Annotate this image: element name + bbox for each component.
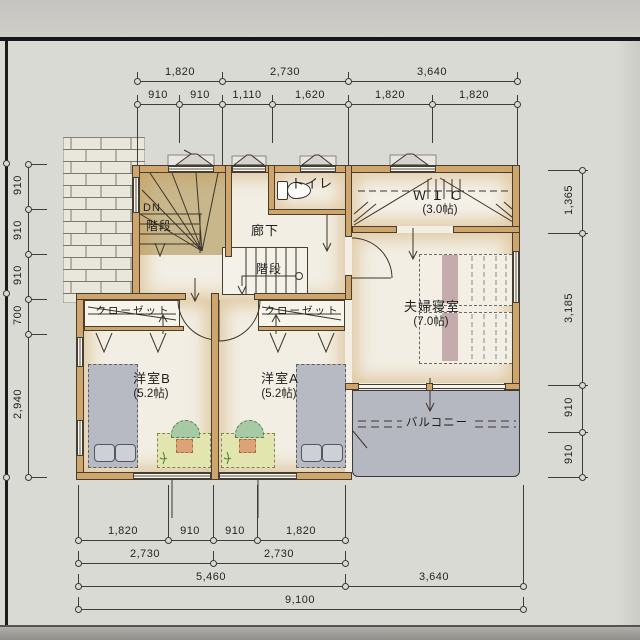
- corridor-label: 廊下: [251, 224, 279, 238]
- dim-top2-0: 910: [148, 89, 168, 101]
- dimension-dot: [3, 290, 10, 297]
- plant-icons: [160, 452, 231, 464]
- wic-size: (3.0帖): [422, 204, 457, 217]
- window: [390, 166, 436, 172]
- dimension-tick: [348, 105, 349, 165]
- window: [77, 420, 83, 456]
- dimension-line: [137, 104, 517, 105]
- dimension-dot: [25, 296, 32, 303]
- wic-label: ＷＩＣ: [413, 189, 467, 203]
- dim-bot1-2: 910: [225, 525, 245, 537]
- wall-segment: [268, 209, 352, 215]
- dimension-dot: [134, 78, 141, 85]
- dimension-dot: [3, 160, 10, 167]
- dimension-line: [78, 609, 523, 610]
- wall-segment: [225, 165, 232, 257]
- stairs-upper-label: 階段: [146, 220, 172, 233]
- wall-segment: [345, 165, 352, 237]
- dimension-dot: [210, 560, 217, 567]
- wall-segment: [352, 226, 397, 233]
- dimension-dot: [345, 101, 352, 108]
- dim-right-1: 3,185: [563, 286, 575, 330]
- dimension-dot: [134, 101, 141, 108]
- dim-bot1-3: 1,820: [286, 525, 316, 537]
- window: [133, 473, 211, 479]
- toilet-label: トイレ: [291, 177, 333, 191]
- dim-bot2-1: 2,730: [264, 548, 294, 560]
- dim-left-3: 700: [12, 293, 24, 337]
- page-right-shade: [616, 41, 640, 625]
- dimension-dot: [579, 230, 586, 237]
- dim-bot4-0: 9,100: [285, 594, 315, 606]
- dimension-tick: [272, 105, 273, 143]
- wall-segment: [76, 293, 186, 300]
- window: [219, 473, 297, 479]
- window: [168, 166, 214, 172]
- wall-segment: [453, 226, 520, 233]
- window: [232, 166, 266, 172]
- dim-right-3: 910: [563, 432, 575, 476]
- dimension-tick: [137, 105, 138, 165]
- master-bedroom-label: 夫婦寝室: [404, 300, 460, 314]
- wall-segment: [504, 383, 520, 390]
- dim-bot1-0: 1,820: [108, 525, 138, 537]
- dimension-dot: [25, 331, 32, 338]
- dim-top1-0: 1,820: [165, 66, 195, 78]
- dimension-tick: [179, 105, 180, 143]
- dimension-dot: [514, 78, 521, 85]
- dim-bot1-1: 910: [180, 525, 200, 537]
- dim-left-1: 910: [12, 208, 24, 252]
- dimension-dot: [520, 606, 527, 613]
- room-a-label: 洋室A: [261, 372, 299, 386]
- dimension-dot: [345, 78, 352, 85]
- dimension-dot: [75, 537, 82, 544]
- wall-post: [426, 383, 433, 391]
- dimension-dot: [25, 161, 32, 168]
- window: [300, 166, 336, 172]
- closet-a-label: クローゼット: [265, 306, 340, 318]
- dimension-line: [137, 81, 517, 82]
- wall-segment: [345, 275, 352, 300]
- wall-segment: [84, 326, 184, 331]
- dimension-dot: [75, 606, 82, 613]
- dim-bot3-0: 5,460: [196, 571, 226, 583]
- wall-segment: [345, 383, 359, 390]
- dimension-dot: [579, 474, 586, 481]
- dimension-dot: [165, 537, 172, 544]
- wall-segment: [254, 293, 352, 300]
- dimension-dot: [25, 474, 32, 481]
- dimension-tick: [523, 485, 524, 583]
- dim-left-0: 910: [12, 163, 24, 207]
- window: [513, 251, 519, 303]
- page-top-band: [0, 0, 640, 37]
- dimension-dot: [75, 583, 82, 590]
- dimension-dot: [342, 537, 349, 544]
- master-bed-fold-lines: [472, 256, 506, 359]
- page-left-edge: [5, 41, 8, 628]
- stairs-upper-fan: [140, 173, 218, 256]
- dim-right-2: 910: [563, 385, 575, 429]
- page-bottom-band: [0, 627, 640, 640]
- dimension-line: [78, 586, 523, 587]
- dim-bot2-0: 2,730: [130, 548, 160, 560]
- dimension-dot: [520, 583, 527, 590]
- dim-top2-1: 910: [190, 89, 210, 101]
- dim-top2-3: 1,620: [295, 89, 325, 101]
- dimension-dot: [579, 167, 586, 174]
- dimension-dot: [429, 101, 436, 108]
- dim-right-0: 1,365: [563, 178, 575, 222]
- dimension-dot: [342, 560, 349, 567]
- dimension-tick: [222, 105, 223, 165]
- closet-b-label: クローゼット: [96, 306, 171, 318]
- dimension-dot: [219, 78, 226, 85]
- room-b-label: 洋室B: [133, 372, 171, 386]
- room-b-size: (5.2帖): [133, 388, 168, 401]
- wall-segment: [258, 326, 345, 331]
- dimension-dot: [210, 537, 217, 544]
- dim-left-2: 910: [12, 253, 24, 297]
- dimension-dot: [254, 537, 261, 544]
- room-a-size: (5.2帖): [261, 388, 296, 401]
- dimension-dot: [75, 560, 82, 567]
- dimension-dot: [3, 474, 10, 481]
- dimension-tick: [517, 105, 518, 165]
- dim-top2-5: 1,820: [459, 89, 489, 101]
- dim-top1-1: 2,730: [270, 66, 300, 78]
- dimension-dot: [25, 206, 32, 213]
- dimension-dot: [579, 429, 586, 436]
- wall-segment: [268, 165, 275, 215]
- stairs-center-label: 階段: [256, 263, 282, 276]
- dimension-dot: [176, 101, 183, 108]
- page-top-rule: [0, 37, 640, 41]
- dim-top2-2: 1,110: [232, 89, 261, 101]
- window: [133, 177, 139, 213]
- dimension-dot: [579, 382, 586, 389]
- dim-top1-2: 3,640: [417, 66, 447, 78]
- floor-plan-photo: { "rooms": { "toilet": {"label": "トイレ"},…: [0, 0, 640, 640]
- wall-segment: [211, 293, 219, 480]
- stairs-dn-label: DN: [143, 202, 161, 214]
- dimension-dot: [342, 583, 349, 590]
- dimension-dot: [25, 251, 32, 258]
- dimension-tick: [432, 105, 433, 143]
- dimension-dot: [514, 101, 521, 108]
- window: [77, 337, 83, 367]
- dimension-dot: [219, 101, 226, 108]
- dim-top2-4: 1,820: [375, 89, 405, 101]
- dim-left-4: 2,940: [12, 382, 24, 426]
- master-bedroom-size: (7.0帖): [413, 316, 448, 329]
- dimension-dot: [269, 101, 276, 108]
- balcony-label: バルコニー: [402, 417, 472, 430]
- dim-bot3-1: 3,640: [419, 571, 449, 583]
